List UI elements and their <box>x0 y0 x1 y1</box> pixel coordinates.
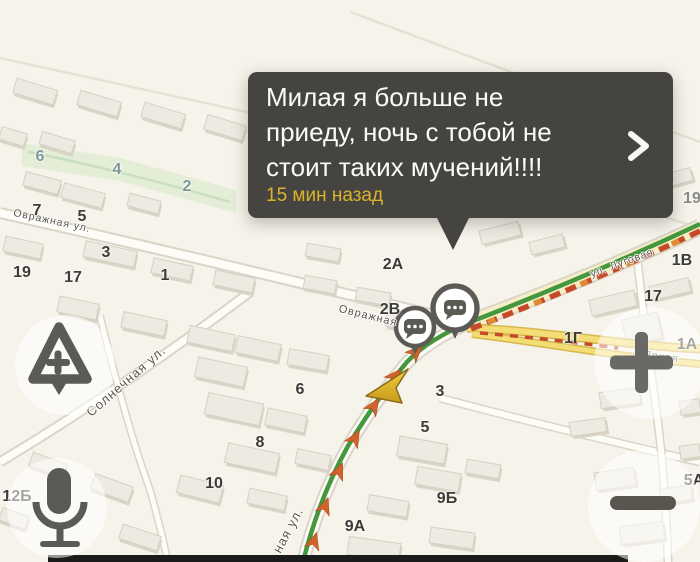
zoom-out-button[interactable] <box>588 450 700 562</box>
letterbox-bar <box>48 555 628 562</box>
popup-timestamp: 15 мин назад <box>266 185 383 207</box>
user-location-arrow <box>366 369 408 403</box>
popup-tail <box>436 216 470 250</box>
popup-message: Милая я больше не приеду, ночь с тобой н… <box>266 80 552 185</box>
minus-icon <box>588 450 700 562</box>
add-road-event-button[interactable] <box>15 315 115 415</box>
road-event-popup[interactable]: Милая я больше не приеду, ночь с тобой н… <box>248 72 673 218</box>
map-screen[interactable]: 191731756422А2В3681059Б9А12Б1В171Г1А5А19… <box>0 0 700 562</box>
chevron-right-icon[interactable] <box>626 130 652 162</box>
zoom-in-button[interactable] <box>594 307 700 419</box>
voice-command-button[interactable] <box>7 458 107 558</box>
warning-triangle-plus-icon <box>15 315 115 415</box>
microphone-icon <box>7 458 107 558</box>
plus-icon <box>594 307 700 419</box>
